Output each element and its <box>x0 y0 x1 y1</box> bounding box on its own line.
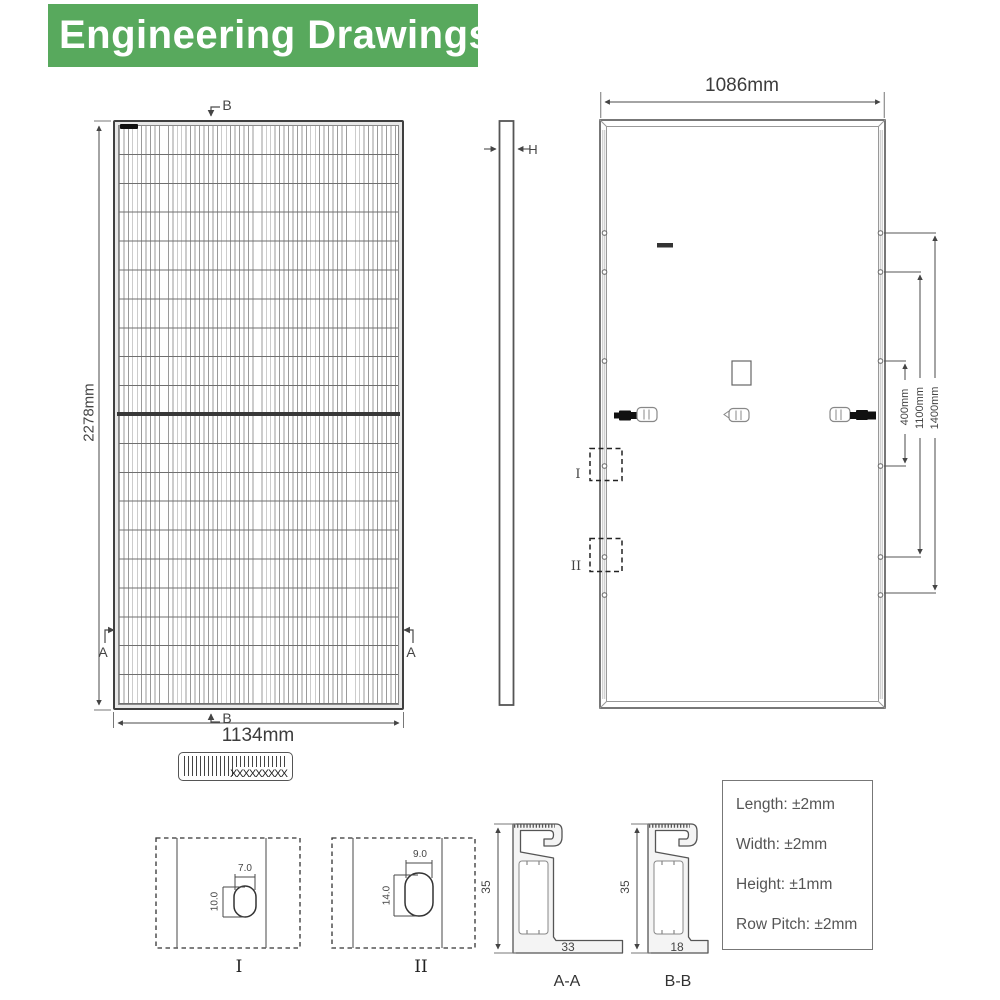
junction-box <box>732 361 751 385</box>
side-thickness-label: H <box>526 142 540 157</box>
section-aa-base-label: 33 <box>553 940 583 954</box>
back-view-frame <box>600 120 885 708</box>
detail-2-label: II <box>409 957 433 977</box>
page-title: Engineering Drawings <box>48 13 491 58</box>
pitch-400-label: 400mm <box>899 380 911 434</box>
back-width-dim-label: 1086mm <box>677 75 807 97</box>
back-view-mounting-holes <box>602 231 883 598</box>
tolerance-length: Length: ±2mm <box>736 796 868 814</box>
tolerance-width: Width: ±2mm <box>736 836 868 854</box>
detail-view-2 <box>332 838 475 948</box>
back-detail-2-marker: II <box>566 559 586 574</box>
section-bb-title: B-B <box>648 973 708 991</box>
right-cable-connector <box>830 408 876 422</box>
pitch-1100-label: 1100mm <box>914 378 926 438</box>
page-title-bar: Engineering Drawings <box>48 4 478 67</box>
detail-1-width-label: 7.0 <box>230 863 260 874</box>
section-b-label-top: B <box>220 97 234 113</box>
front-width-dim-label: 1134mm <box>198 725 318 747</box>
tolerance-height: Height: ±1mm <box>736 876 868 894</box>
front-height-dim-label: 2278mm <box>81 373 98 453</box>
barcode-text: XXXXXXXXX <box>230 768 287 780</box>
detail-1-height-label: 10.0 <box>210 885 221 919</box>
front-view-nameplate <box>120 124 138 129</box>
front-view-panel <box>113 120 404 710</box>
section-bb-base-label: 18 <box>662 940 692 954</box>
section-bb-profile <box>631 824 708 953</box>
section-b-label-bottom: B <box>220 710 234 726</box>
serial-barcode-label: XXXXXXXXX <box>178 752 293 781</box>
side-view-profile <box>484 121 530 705</box>
detail-2-height-label: 14.0 <box>382 879 393 913</box>
section-aa-title: A-A <box>537 973 597 991</box>
left-cable-connector <box>614 408 657 422</box>
detail-2-width-label: 9.0 <box>405 849 435 860</box>
tolerance-row-pitch: Row Pitch: ±2mm <box>736 916 868 934</box>
tolerance-table: Length: ±2mm Width: ±2mm Height: ±1mm Ro… <box>722 780 873 950</box>
middle-cable-connector <box>724 409 749 422</box>
pitch-1400-label: 1400mm <box>929 378 941 438</box>
detail-1-label: I <box>227 957 251 977</box>
section-bb-height-label: 35 <box>618 875 632 899</box>
engineering-drawing-page: Engineering Drawings XXXXXXXXX Length: ±… <box>0 0 1000 1000</box>
detail-view-1 <box>156 838 300 948</box>
section-a-label-left: A <box>96 644 110 660</box>
section-a-label-right: A <box>404 644 418 660</box>
section-aa-height-label: 35 <box>479 875 493 899</box>
section-aa-profile <box>494 824 623 953</box>
detail-marker-boxes <box>590 449 622 572</box>
front-view-center-divider <box>117 412 400 416</box>
back-view-nameplate <box>657 243 673 248</box>
barcode-bars-icon <box>236 756 287 767</box>
barcode-bars-icon <box>184 756 236 776</box>
back-detail-1-marker: I <box>570 467 586 482</box>
